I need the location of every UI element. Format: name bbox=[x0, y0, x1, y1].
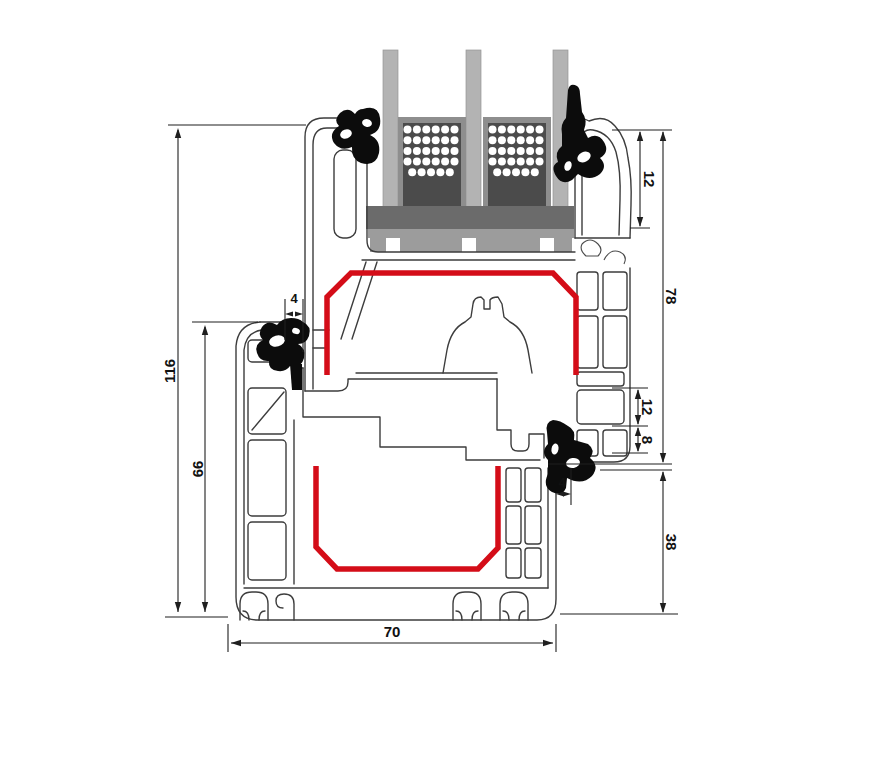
setting-block-tabs bbox=[370, 238, 572, 252]
glass-pane-outer bbox=[383, 50, 398, 218]
dim-label-78: 78 bbox=[663, 288, 680, 305]
frame-left-chambers bbox=[248, 340, 286, 580]
bead-clip-hook bbox=[604, 251, 625, 264]
setting-block-rail bbox=[368, 229, 574, 238]
dim-label-66: 66 bbox=[189, 461, 206, 478]
dim-frame-height: 66 bbox=[189, 325, 208, 612]
dim-label-70: 70 bbox=[384, 623, 401, 640]
dim-chamber-12: 12 bbox=[635, 389, 656, 425]
dim-glazing-bead: 12 bbox=[637, 131, 658, 227]
glass-pane-middle bbox=[466, 50, 481, 218]
gasket-frame-left bbox=[256, 318, 310, 390]
dim-label-12-mid: 12 bbox=[639, 399, 656, 416]
dim-total-height: 116 bbox=[161, 128, 181, 612]
steel-reinforcement-frame bbox=[316, 466, 498, 569]
frame-right-chambers bbox=[506, 468, 541, 578]
mounting-slots bbox=[240, 592, 528, 620]
glazing-unit bbox=[366, 50, 574, 252]
dim-sash-height: 78 bbox=[660, 131, 680, 463]
technical-drawing-window-profile: 116 66 4 12 78 12 8 38 bbox=[0, 0, 877, 766]
steel-reinforcement-sash bbox=[327, 273, 576, 375]
profile-cross-section-canvas: 116 66 4 12 78 12 8 38 bbox=[0, 0, 877, 766]
dim-label-116: 116 bbox=[161, 359, 178, 383]
glazing-block bbox=[366, 206, 574, 229]
screw-boss bbox=[443, 297, 532, 373]
sash-left-chamber bbox=[334, 150, 356, 238]
dim-label-8: 8 bbox=[639, 436, 656, 444]
hardware-groove bbox=[497, 379, 544, 458]
gasket-bottom-right bbox=[544, 420, 596, 494]
dim-chamber-8: 8 bbox=[635, 427, 656, 452]
dim-label-4-bottom: 4 bbox=[558, 475, 566, 490]
sash-right-chambers bbox=[577, 272, 627, 456]
dim-label-12-top: 12 bbox=[641, 171, 658, 188]
dim-profile-depth: 70 bbox=[231, 623, 553, 646]
dim-label-4-top: 4 bbox=[290, 291, 298, 306]
gasket-top-left bbox=[332, 108, 380, 164]
dim-gasket-top: 4 bbox=[285, 291, 303, 317]
dim-frame-face: 38 bbox=[660, 471, 680, 613]
dim-label-38: 38 bbox=[663, 534, 680, 551]
bead-clip-hook bbox=[581, 240, 601, 256]
